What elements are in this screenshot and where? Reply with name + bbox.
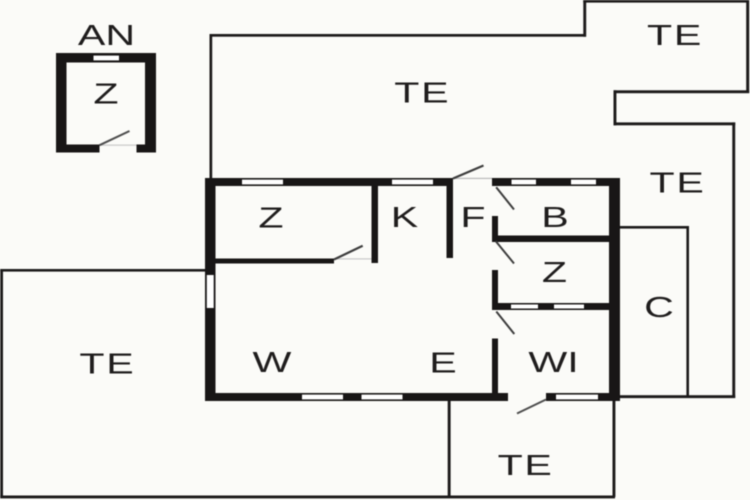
svg-text:E: E xyxy=(429,346,456,379)
svg-text:TE: TE xyxy=(647,19,703,52)
svg-text:B: B xyxy=(541,201,568,234)
svg-text:Z: Z xyxy=(93,77,118,110)
svg-text:K: K xyxy=(391,201,419,234)
svg-text:W: W xyxy=(253,346,292,379)
svg-text:TE: TE xyxy=(79,347,135,380)
svg-text:C: C xyxy=(644,291,674,324)
svg-text:Z: Z xyxy=(542,256,567,289)
svg-text:F: F xyxy=(460,201,485,234)
svg-text:Z: Z xyxy=(258,201,283,234)
svg-text:TE: TE xyxy=(498,449,554,482)
svg-text:AN: AN xyxy=(78,19,135,52)
svg-text:WI: WI xyxy=(528,346,578,379)
svg-text:TE: TE xyxy=(394,76,450,109)
svg-text:TE: TE xyxy=(649,166,705,199)
